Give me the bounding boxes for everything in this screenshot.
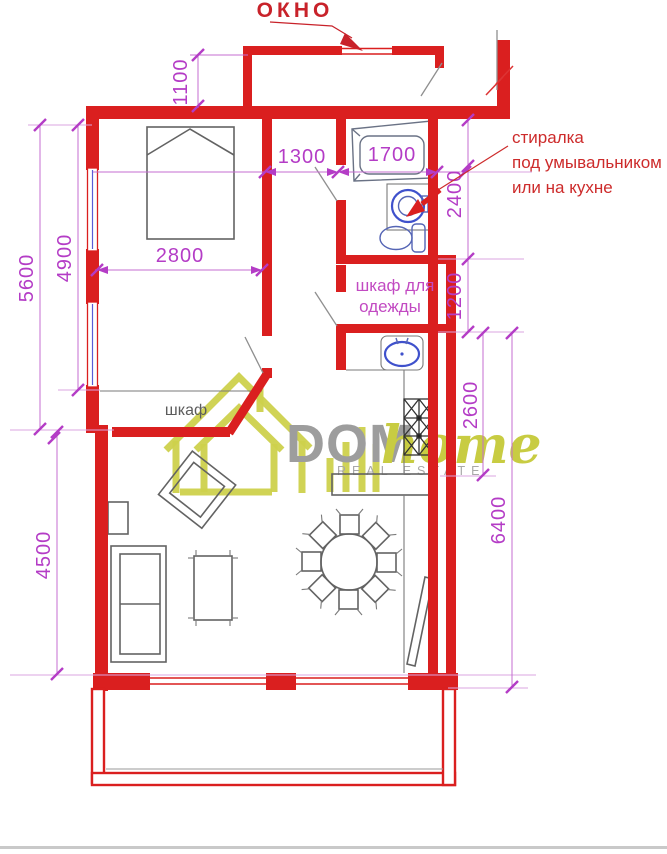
dim-kitchen-length: 2600 (460, 381, 482, 430)
dining-table (296, 509, 402, 615)
left-wall (86, 106, 99, 164)
top-wall (86, 106, 510, 119)
toilet (380, 224, 425, 252)
sofa (111, 546, 166, 662)
closet-label: шкаф (165, 402, 207, 419)
floor-plan-page: DOM home REAL ESTATE (0, 0, 667, 854)
balcony-top-wall (243, 46, 342, 55)
left-wall-lower (95, 425, 108, 691)
dim-hall-width: 1300 (278, 146, 327, 168)
bedroom-door-leaf (245, 337, 263, 373)
side-table (108, 502, 128, 534)
dim-bedroom-length: 4900 (54, 234, 76, 283)
balcony-right-wall (435, 46, 444, 68)
dim-right-side: 6400 (488, 496, 510, 545)
dim-bathroom-width: 1700 (368, 144, 417, 166)
washer-leader (438, 146, 508, 190)
bathroom-left-wall (336, 200, 346, 257)
dim-left-side: 5600 (16, 254, 38, 303)
bottom-border (0, 846, 667, 849)
central-wall (262, 119, 272, 336)
wardrobe-door-leaf (315, 292, 337, 326)
window-leader (270, 22, 352, 38)
dim-bedroom-width: 2800 (156, 245, 205, 267)
closet-wall (112, 427, 230, 437)
left-window-1 (88, 168, 98, 251)
dim-bathroom-length: 2400 (444, 170, 466, 219)
walls-layer (86, 30, 513, 785)
washing-machine (387, 184, 433, 230)
bottom-wall (93, 673, 150, 690)
bottom-wall (408, 673, 458, 690)
wardrobe-left-wall (336, 265, 346, 292)
coffee-table (188, 550, 238, 626)
wardrobe-label-line2: одежды (359, 297, 421, 316)
left-wall (86, 257, 99, 299)
window-label: ОКНО (257, 0, 334, 22)
bed (147, 127, 234, 239)
left-window-2 (88, 302, 98, 387)
washer-note-line2: под умывальником (512, 153, 662, 172)
bathroom-left-wall (336, 119, 346, 165)
dim-balcony-depth: 1100 (170, 58, 192, 105)
wardrobe-label-line1: шкаф для (356, 276, 435, 295)
floor-plan-svg: DOM home REAL ESTATE (0, 0, 667, 854)
bottom-wall-pier (266, 673, 296, 690)
kitchen-sink (381, 336, 423, 370)
lower-balcony (92, 689, 455, 785)
dim-living-length: 4500 (33, 531, 55, 580)
dim-wardrobe-length: 1200 (444, 272, 466, 321)
entry-door-leaf (421, 63, 442, 96)
washer-note-line1: стиралка (512, 128, 584, 147)
dining-chairs (296, 509, 402, 615)
washer-note-line3: или на кухне (512, 178, 613, 197)
notes-layer: ОКНО стиралка под умывальником или на ку… (165, 0, 662, 419)
